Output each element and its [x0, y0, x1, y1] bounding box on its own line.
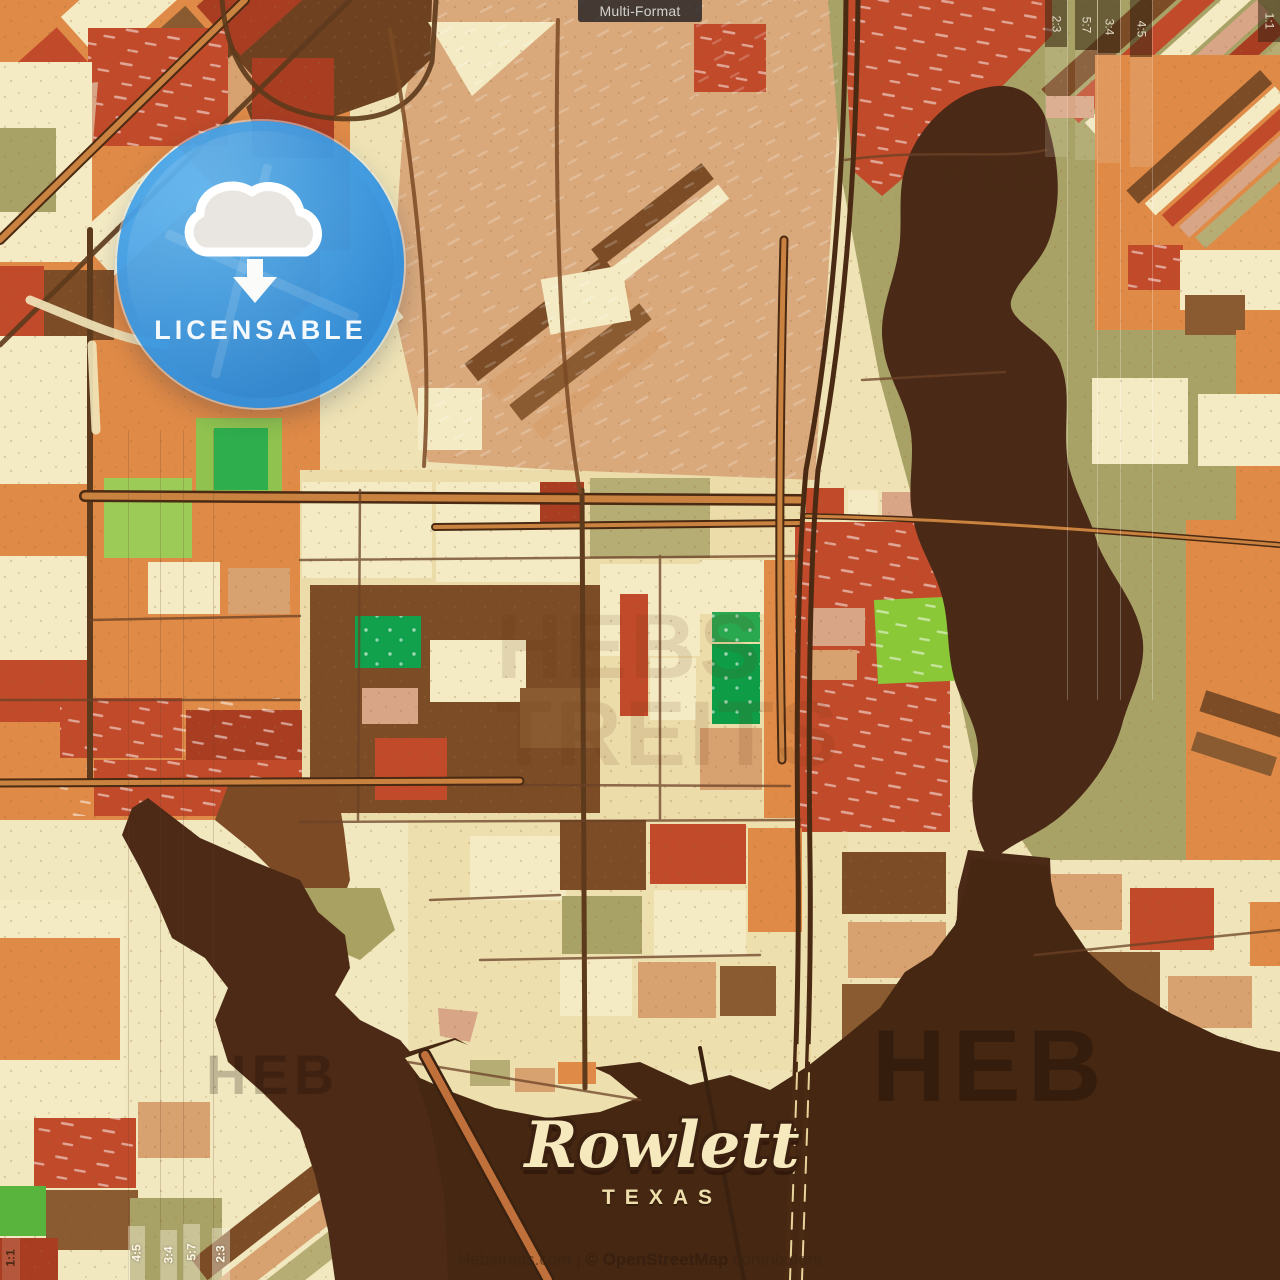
- crop-guide-strip: [1130, 57, 1152, 167]
- crop-tab-4-5-top: 4:5: [1130, 0, 1152, 57]
- crop-guide-strip: [1045, 47, 1067, 157]
- crop-tab-3-4-top: 3:4: [1098, 0, 1120, 53]
- attribution-site: Hebstreits.com: [458, 1250, 571, 1269]
- watermark-center-line1: HEBS: [496, 604, 841, 691]
- watermark-center-line2: TREITS: [496, 691, 841, 778]
- crop-tab-label: 5:7: [1079, 17, 1093, 34]
- crop-guide-strip: [1098, 53, 1120, 163]
- attribution: Hebstreits.com | © OpenStreetMap contrib…: [0, 1250, 1280, 1270]
- crop-guide-line: [213, 430, 214, 1280]
- cloud-download-icon: [175, 155, 347, 307]
- attribution-contributors: contributors: [733, 1250, 822, 1269]
- attribution-osm: © OpenStreetMap: [585, 1250, 728, 1269]
- crop-tab-label: 3:4: [1102, 18, 1116, 35]
- crop-guide-line: [128, 430, 129, 1280]
- crop-guide-line: [160, 430, 161, 1280]
- poster-preview: 2:3 5:7 3:4 4:5 1:1 4:5 3:4 5:7 2:3 1:1 …: [0, 0, 1280, 1280]
- city-name: Rowlett: [512, 1108, 812, 1183]
- state-name: TEXAS: [512, 1186, 812, 1210]
- format-tab-label: Multi-Format: [600, 3, 681, 19]
- crop-guide-strip: [1075, 50, 1097, 160]
- crop-guide-line: [1067, 0, 1068, 700]
- crop-tab-label: 4:5: [1134, 20, 1148, 37]
- crop-tab-5-7-top: 5:7: [1075, 0, 1097, 50]
- crop-guide-line: [183, 430, 184, 1280]
- crop-tab-label: 1:1: [1262, 13, 1276, 30]
- watermark-center: HEBS TREITS: [496, 604, 841, 779]
- crop-tab-1-1-top: 1:1: [1258, 0, 1280, 42]
- badge-label: LICENSABLE: [154, 315, 367, 346]
- attribution-separator: |: [576, 1250, 580, 1269]
- watermark-top-right-suffix: STREITS: [1044, 162, 1054, 218]
- crop-guide-line: [1120, 0, 1121, 700]
- crop-tab-label: 2:3: [1049, 15, 1063, 32]
- format-tab: Multi-Format: [578, 0, 702, 22]
- watermark-lake-right: HEB: [872, 1018, 1108, 1115]
- crop-tab-2-3-top: 2:3: [1045, 0, 1067, 47]
- licensable-badge[interactable]: LICENSABLE: [117, 121, 404, 408]
- watermark-lake-left: HEB: [206, 1048, 339, 1101]
- crop-guide-line: [1152, 0, 1153, 700]
- watermark-top-right: HEB: [938, 154, 1056, 198]
